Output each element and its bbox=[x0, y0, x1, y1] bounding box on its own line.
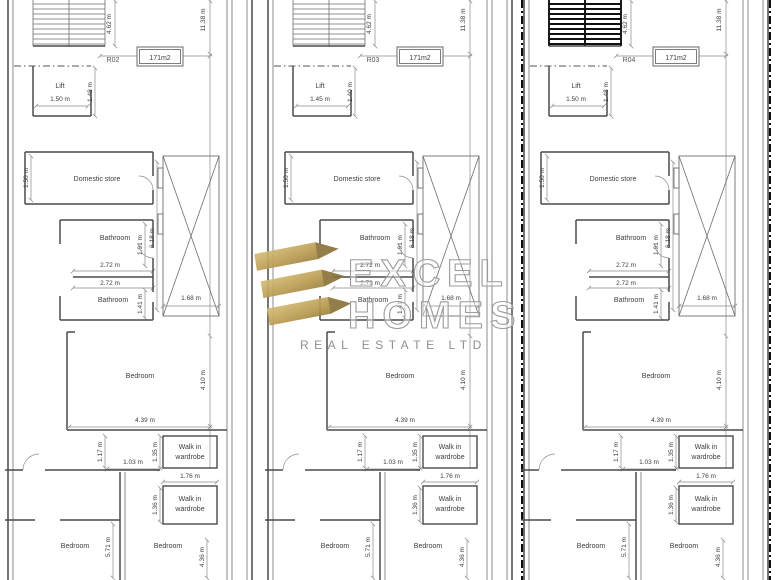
bedroom-width-dim: 4.39 m bbox=[651, 417, 671, 424]
plan-drawing: 4.62 m11.38 m3.88 mR02171m2Lift1.50 m1.4… bbox=[5, 0, 255, 580]
area-label: 171m2 bbox=[409, 55, 431, 62]
stairs-height-dim: 4.62 m bbox=[106, 14, 113, 34]
shaft-vent bbox=[158, 168, 163, 188]
total-height-dim: 11.38 m bbox=[460, 8, 467, 31]
floor-plan-r04: 4.62 m11.38 m3.88 mR04171m2Lift1.50 m1.4… bbox=[521, 0, 771, 580]
shaft-vent bbox=[418, 168, 423, 188]
wardrobe2 bbox=[423, 486, 477, 524]
bath-width-a-dim: 2.72 m bbox=[616, 262, 636, 269]
room-label-bedroom-right: Bedroom bbox=[670, 543, 699, 550]
hall-width-dim: 1.03 m bbox=[123, 459, 143, 466]
room-label-bedroom-main: Bedroom bbox=[386, 373, 415, 380]
bath2-depth-dim: 1.41 m bbox=[397, 294, 404, 314]
shaft-vent bbox=[674, 214, 679, 234]
wardrobe1-label-line1: Walk in bbox=[695, 444, 718, 451]
shaft-vent bbox=[674, 168, 679, 188]
lift-width-dim: 1.50 m bbox=[50, 96, 70, 103]
room-number: R04 bbox=[623, 57, 636, 64]
bath-width-a-dim: 2.72 m bbox=[360, 262, 380, 269]
bath-width-a-dim: 2.72 m bbox=[100, 262, 120, 269]
bath2-depth-dim: 1.41 m bbox=[137, 294, 144, 314]
wardrobe1-label-line1: Walk in bbox=[179, 444, 202, 451]
room-label-bedroom-left: Bedroom bbox=[577, 543, 606, 550]
bedroom-left-height-dim: 5.71 m bbox=[365, 537, 372, 557]
wardrobe2 bbox=[679, 486, 733, 524]
bedroom-right-height-dim: 4.36 m bbox=[715, 547, 722, 567]
bedroom-depth-dim: 4.10 m bbox=[460, 370, 467, 390]
bath1-depth-dim: 1.91 m bbox=[137, 235, 144, 255]
wardrobe2-depth-dim: 1.36 m bbox=[152, 495, 159, 515]
room-label-bathroom2: Bathroom bbox=[358, 297, 389, 304]
room-label-bedroom-main: Bedroom bbox=[126, 373, 155, 380]
stairs-height-dim: 4.62 m bbox=[622, 14, 629, 34]
plan-drawing: 4.62 m11.38 m3.88 mR04171m2Lift1.50 m1.4… bbox=[521, 0, 771, 580]
wardrobe2-depth-dim: 1.36 m bbox=[412, 495, 419, 515]
shaft-width-dim: 1.68 m bbox=[181, 295, 201, 302]
shaft-vent bbox=[418, 214, 423, 234]
bath2-depth-dim: 1.41 m bbox=[653, 294, 660, 314]
wardrobe1-label-line1: Walk in bbox=[439, 444, 462, 451]
door-arc bbox=[23, 454, 39, 470]
bedroom-depth-dim: 4.10 m bbox=[200, 370, 207, 390]
wardrobe1-label-line2: wardrobe bbox=[434, 454, 464, 461]
wardrobe2 bbox=[163, 486, 217, 524]
door-arc bbox=[655, 176, 669, 190]
door-arc bbox=[283, 454, 299, 470]
area-label: 171m2 bbox=[665, 55, 687, 62]
bedroom-depth-dim: 4.10 m bbox=[716, 370, 723, 390]
wardrobe-width-dim: 1.76 m bbox=[696, 473, 716, 480]
wardrobe2-label-line2: wardrobe bbox=[174, 506, 204, 513]
lift-label: Lift bbox=[571, 83, 580, 90]
room-label-bedroom-main: Bedroom bbox=[642, 373, 671, 380]
shaft-width-dim: 1.68 m bbox=[441, 295, 461, 302]
stairs-height-dim: 4.62 m bbox=[366, 14, 373, 34]
store-depth-dim: 1.50 m bbox=[283, 168, 290, 188]
room-label-bedroom-right: Bedroom bbox=[414, 543, 443, 550]
wardrobe2-label-line2: wardrobe bbox=[690, 506, 720, 513]
plan-drawing: 4.62 m11.38 m3.88 mR03171m2Lift1.45 m1.4… bbox=[265, 0, 515, 580]
lift-depth-dim: 1.40 m bbox=[347, 82, 354, 102]
wardrobe1 bbox=[163, 436, 217, 468]
bedroom-width-dim: 4.39 m bbox=[395, 417, 415, 424]
wardrobe-width-dim: 1.76 m bbox=[440, 473, 460, 480]
room-label-bathroom2: Bathroom bbox=[98, 297, 129, 304]
hall-depth-dim: 1.17 m bbox=[357, 442, 364, 462]
hall-width-dim: 1.03 m bbox=[639, 459, 659, 466]
area-label: 171m2 bbox=[149, 55, 171, 62]
room-label-bathroom1: Bathroom bbox=[100, 235, 131, 242]
wardrobe1-depth-dim: 1.35 m bbox=[152, 442, 159, 462]
bath-width-b-dim: 2.72 m bbox=[100, 280, 120, 287]
wardrobe-width-dim: 1.76 m bbox=[180, 473, 200, 480]
shaft-width-dim: 1.68 m bbox=[697, 295, 717, 302]
room-label-bathroom2: Bathroom bbox=[614, 297, 645, 304]
wardrobe1-label-line2: wardrobe bbox=[690, 454, 720, 461]
room-number: R02 bbox=[107, 57, 120, 64]
room-label-bedroom-left: Bedroom bbox=[321, 543, 350, 550]
bedroom-width-dim: 4.39 m bbox=[135, 417, 155, 424]
lift-depth-dim: 1.48 m bbox=[603, 82, 610, 102]
wardrobe1 bbox=[679, 436, 733, 468]
room-label-domestic-store: Domestic store bbox=[590, 176, 637, 183]
room-label-bathroom1: Bathroom bbox=[360, 235, 391, 242]
bath1-depth-dim: 1.91 m bbox=[653, 235, 660, 255]
lift-depth-dim: 1.48 m bbox=[87, 82, 94, 102]
wardrobe2-label-line2: wardrobe bbox=[434, 506, 464, 513]
bath-width-b-dim: 2.72 m bbox=[616, 280, 636, 287]
shaft-vent bbox=[158, 214, 163, 234]
room-label-bedroom-right: Bedroom bbox=[154, 543, 183, 550]
hall-depth-dim: 1.17 m bbox=[613, 442, 620, 462]
lift-width-dim: 1.50 m bbox=[566, 96, 586, 103]
hall-depth-dim: 1.17 m bbox=[97, 442, 104, 462]
wardrobe1-label-line2: wardrobe bbox=[174, 454, 204, 461]
room-label-bathroom1: Bathroom bbox=[616, 235, 647, 242]
bath1-depth-dim: 1.91 m bbox=[397, 235, 404, 255]
bath-width-b-dim: 2.72 m bbox=[360, 280, 380, 287]
wardrobe2-depth-dim: 1.36 m bbox=[668, 495, 675, 515]
lift-width-dim: 1.45 m bbox=[310, 96, 330, 103]
total-height-dim: 11.38 m bbox=[200, 8, 207, 31]
wardrobe1-depth-dim: 1.35 m bbox=[412, 442, 419, 462]
door-arc bbox=[399, 176, 413, 190]
wardrobe1-depth-dim: 1.35 m bbox=[668, 442, 675, 462]
bedroom-right-height-dim: 4.36 m bbox=[459, 547, 466, 567]
room-label-domestic-store: Domestic store bbox=[334, 176, 381, 183]
bedroom-left-height-dim: 5.71 m bbox=[105, 537, 112, 557]
floor-plan-r02: 4.62 m11.38 m3.88 mR02171m2Lift1.50 m1.4… bbox=[5, 0, 255, 580]
store-depth-dim: 1.50 m bbox=[539, 168, 546, 188]
bedroom-right-height-dim: 4.36 m bbox=[199, 547, 206, 567]
wardrobe2-label-line1: Walk in bbox=[695, 496, 718, 503]
door-arc bbox=[139, 176, 153, 190]
room-label-bedroom-left: Bedroom bbox=[61, 543, 90, 550]
total-height-dim: 11.38 m bbox=[716, 8, 723, 31]
store-depth-dim: 1.50 m bbox=[23, 168, 30, 188]
floor-plan-r03: 4.62 m11.38 m3.88 mR03171m2Lift1.45 m1.4… bbox=[265, 0, 515, 580]
bedroom-left-height-dim: 5.71 m bbox=[621, 537, 628, 557]
room-label-domestic-store: Domestic store bbox=[74, 176, 121, 183]
door-arc bbox=[539, 454, 555, 470]
wardrobe2-label-line1: Walk in bbox=[439, 496, 462, 503]
lift-label: Lift bbox=[55, 83, 64, 90]
wardrobe1 bbox=[423, 436, 477, 468]
room-number: R03 bbox=[367, 57, 380, 64]
lift-label: Lift bbox=[315, 83, 324, 90]
hall-width-dim: 1.03 m bbox=[383, 459, 403, 466]
wardrobe2-label-line1: Walk in bbox=[179, 496, 202, 503]
